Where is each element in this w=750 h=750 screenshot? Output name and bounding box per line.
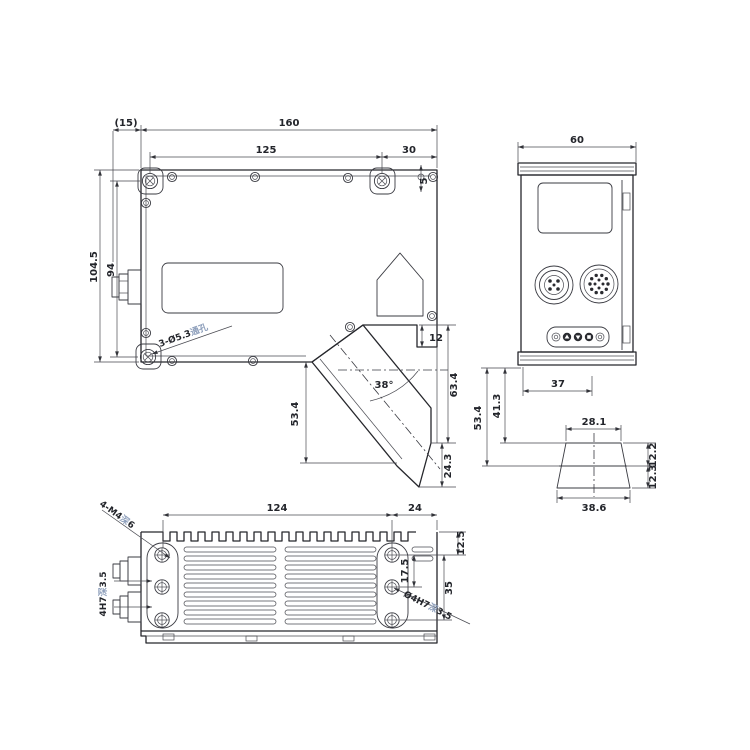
dim-tip-height: 24.3 [443,454,454,479]
dim-mount-hole-span-bottom: 35 [444,581,455,595]
dim-ref-distance-side: 53.4 [473,406,484,431]
dim-ref-offset: (15) [114,118,137,129]
drawing-sheet: 38° (15) 160 125 30 5 104.5 94 3-Ø5.3通孔 [0,0,750,750]
dim-fin-span: 124 [267,503,288,514]
dim-beam-offset: 37 [551,379,565,390]
dim-pin-hole-span: 17.5 [400,559,411,584]
dim-step-height: 12 [429,333,443,344]
dim-right-offset: 30 [402,145,416,156]
dim-range-start: 41.3 [492,394,503,419]
dim-ref-distance-front: 53.4 [290,402,301,427]
pin-note-left: 4H7深3.5 [97,571,109,616]
dim-edge-hole-offset-bottom: 12.5 [456,531,467,556]
dim-mount-hole-height: 94 [106,263,117,277]
dim-edge-hole-offset: 5 [419,177,430,184]
dim-beam-angle: 38° [375,380,394,391]
dim-range-near-width: 28.1 [582,417,607,428]
dim-range-far-width: 38.6 [582,503,607,514]
dim-right-offset-bottom: 24 [408,503,422,514]
dim-side-width: 60 [570,135,584,146]
sheet-background [0,0,750,750]
technical-drawing: 38° (15) 160 125 30 5 104.5 94 3-Ø5.3通孔 [0,0,750,750]
dim-right-height: 63.4 [449,373,460,398]
dim-total-width: 160 [279,118,300,129]
dim-range-upper: 12.2 [648,443,659,468]
dim-total-height: 104.5 [89,251,100,283]
dim-range-lower: 12.3 [648,465,659,490]
dim-mount-hole-span: 125 [256,145,277,156]
